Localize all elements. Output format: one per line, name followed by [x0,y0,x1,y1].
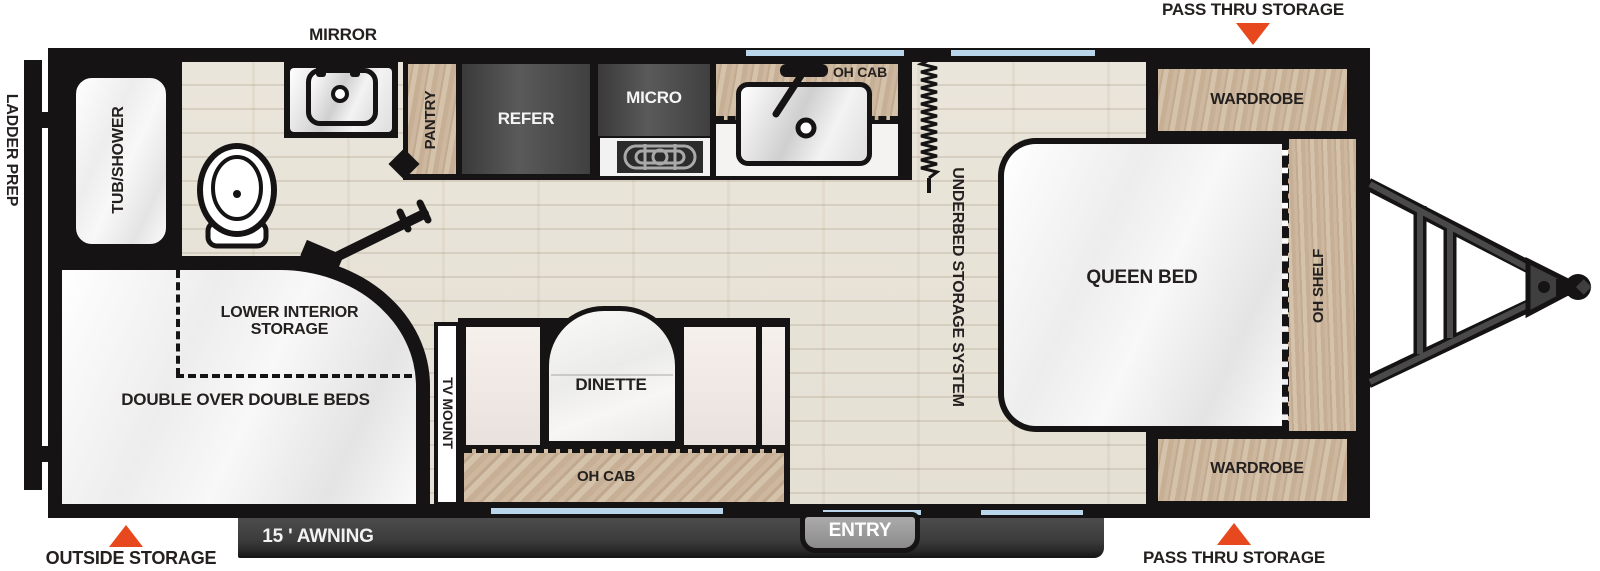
window [490,507,724,515]
double-beds-label: DOUBLE OVER DOUBLE BEDS [98,391,393,409]
dinette-bench-end [762,327,785,445]
micro-label: MICRO [594,89,714,107]
pass-thru-arrow-bottom-icon [1217,523,1251,545]
kitchen-oh-cab-label: OH CAB [820,65,900,80]
bunk-room [48,256,430,518]
queen-bed-label: QUEEN BED [1042,268,1242,289]
pass-thru-arrow-top-icon [1236,23,1270,45]
wardrobe-bottom-label: WARDROBE [1177,460,1337,477]
oh-shelf-label: OH SHELF [1309,221,1329,351]
cooktop [617,141,703,173]
dinette-bench-right [684,327,756,445]
dinette-oh-cab-label: OH CAB [566,469,646,485]
refer-label: REFER [466,110,586,128]
lower-storage-dash-v [176,270,180,376]
kitchen-sink [736,82,872,166]
rv-floorplan: MIRROR LADDER PREP TUB/SHOWER PANTRY REF… [0,0,1600,571]
bumper-notch-top [40,112,50,128]
bath-sink [306,68,378,126]
entry-label: ENTRY [800,521,920,542]
lower-storage-dash-h [176,374,412,378]
ladder-prep-label: LADDER PREP [1,80,21,220]
awning-label: 15 ' AWNING [248,527,388,548]
pass-thru-storage-bottom-label: PASS THRU STORAGE [1134,549,1334,567]
outside-storage-arrow-icon [109,525,143,547]
tongue-hitch [1368,184,1591,382]
pantry-label: PANTRY [421,65,441,175]
tub-shower-label: TUB/SHOWER [109,80,129,240]
underbed-storage-label: UNDERBED STORAGE SYSTEM [947,137,967,437]
outside-storage-label: OUTSIDE STORAGE [36,549,226,568]
window [745,49,905,57]
dinette-bench-left [466,327,540,445]
pass-thru-storage-top-label: PASS THRU STORAGE [1153,1,1353,19]
mirror-label: MIRROR [268,26,418,44]
dinette-label: DINETTE [536,376,686,394]
window [950,49,1096,57]
tv-mount-label: TV MOUNT [437,353,457,473]
wardrobe-top-label: WARDROBE [1177,91,1337,108]
window [980,509,1084,516]
lower-interior-storage-label: LOWER INTERIOR STORAGE [197,304,382,339]
